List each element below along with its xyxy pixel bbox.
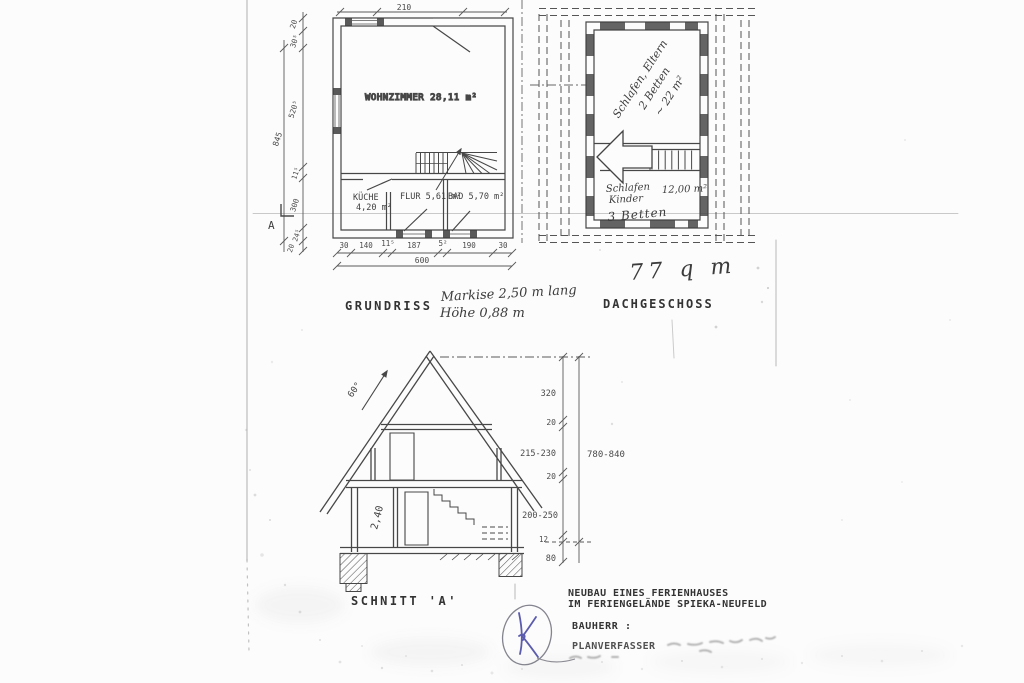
dim-left-1: 30⁵ [288,33,301,49]
room-label-kueche: KÜCHE [353,192,379,203]
markise-note-2: Höhe 0,88 m [439,306,525,321]
roof-angle-label: 60° [346,381,364,400]
dim-left-total: 845 [271,131,284,148]
sec-dim-0: 320 [541,389,556,399]
dim-bottom-5: 190 [462,241,476,250]
architectural-drawing: WOHNZIMMER 28,11 m² KÜCHE 4,20 m² FLUR 5… [0,0,1024,683]
sec-dim-4: 200-250 [522,511,558,521]
room-height-label: 2,40 [369,505,386,531]
approval-stamp: K [0,0,575,670]
dim-left-6: 20 [286,243,296,253]
section-title: SCHNITT 'A' [351,594,458,608]
dim-bottom-6: 30 [498,241,508,250]
sec-dim-6: 80 [546,554,556,564]
sec-dim-5: 12 [539,535,548,544]
room-label-kueche-area: 4,20 m² [356,203,392,213]
foundation-hatching [340,554,522,592]
parents-room-label: Schlafen, Eltern 2 Betten ~ 22 m² [610,38,699,139]
section-dimensions: 320 20 215-230 20 200-250 12 80 780-840 [440,353,625,566]
svg-text:Kinder: Kinder [608,193,645,206]
ground-plan-stairs [416,149,497,190]
section-drawing: 60° 2,40 [320,351,542,592]
room-label-bad: BAD 5,70 m² [448,192,504,202]
dim-bottom-total: 600 [415,256,430,265]
svg-text:12,00 m²: 12,00 m² [662,183,708,196]
kids-room-label: Schlafen Kinder 12,00 m² 3 Betten [606,182,708,224]
dim-bottom-0: 30 [339,241,349,250]
sheet-annotations: 77 q m GRUNDRISS Markise 2,50 m lang Höh… [345,254,737,321]
sec-dim-total: 780-840 [587,450,625,460]
attic-plan-title: DACHGESCHOSS [603,297,714,311]
dim-bottom-3: 187 [407,241,421,250]
stamp-initial-strokes [519,613,538,657]
title-block: NEUBAU EINES FERIENHAUSES IM FERIENGELÄN… [568,588,775,658]
dim-bottom-4: 5² [438,239,447,248]
ground-plan-title: GRUNDRISS [345,299,433,313]
attic-stairs [650,150,692,170]
dim-bottom-2: 11⁵ [381,239,395,248]
sec-dim-2: 215-230 [520,449,556,459]
scanned-blueprint-sheet: WOHNZIMMER 28,11 m² KÜCHE 4,20 m² FLUR 5… [0,0,1024,683]
dim-left-3: 11⁵ [290,166,302,181]
dim-left-4: 300 [288,197,301,213]
dim-left-2: 520⁵ [287,99,301,119]
section-marker-a: A [268,219,275,232]
dim-left-5: 24⁵ [291,228,303,243]
attic-floor-plan: Schlafen, Eltern 2 Betten ~ 22 m² Schlaf… [522,0,755,243]
total-area-note: 77 q m [629,254,737,286]
sec-dim-3: 20 [546,472,556,481]
bauherr-label: BAUHERR : [572,621,632,632]
dim-bottom-1: 140 [359,241,373,250]
planverfasser-label: PLANVERFASSER [572,641,656,652]
dim-left-0: 20 [288,18,299,30]
room-label-wohnzimmer: WOHNZIMMER 28,11 m² [365,93,477,103]
project-line-2: IM FERIENGELÄNDE SPIEKA-NEUFELD [568,596,767,610]
svg-text:Schlafen: Schlafen [606,182,651,195]
markise-note-1: Markise 2,50 m lang [439,283,577,305]
sec-dim-1: 20 [546,418,556,427]
ground-floor-plan: WOHNZIMMER 28,11 m² KÜCHE 4,20 m² FLUR 5… [333,18,513,238]
project-line-1: NEUBAU EINES FERIENHAUSES [568,588,729,599]
stair-direction-arrow [597,131,652,183]
dim-top: 210 [397,3,412,12]
